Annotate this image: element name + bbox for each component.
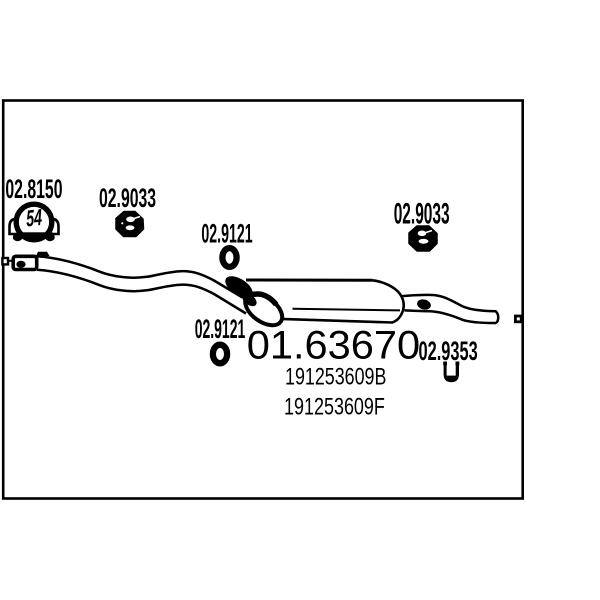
svg-text:02.9121: 02.9121 bbox=[201, 217, 252, 248]
svg-text:02.9033: 02.9033 bbox=[394, 197, 450, 229]
svg-text:01.63670: 01.63670 bbox=[247, 322, 420, 367]
svg-text:02.9033: 02.9033 bbox=[99, 183, 156, 214]
svg-text:54: 54 bbox=[26, 206, 43, 233]
svg-text:02.8150: 02.8150 bbox=[5, 174, 62, 205]
svg-text:02.9121: 02.9121 bbox=[195, 314, 246, 344]
svg-text:191253609F: 191253609F bbox=[284, 393, 385, 420]
svg-text:191253609B: 191253609B bbox=[285, 363, 386, 390]
svg-text:02.9353: 02.9353 bbox=[419, 336, 478, 366]
